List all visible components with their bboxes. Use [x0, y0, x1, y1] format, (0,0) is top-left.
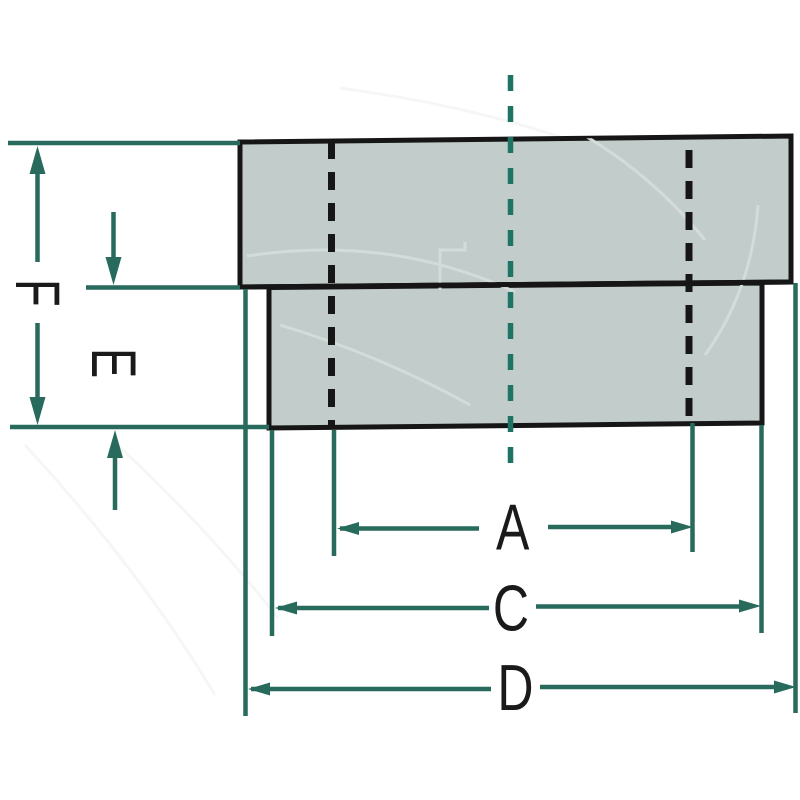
- svg-text:F: F: [2, 279, 73, 307]
- svg-text:D: D: [497, 652, 533, 725]
- svg-text:A: A: [496, 491, 530, 564]
- svg-text:E: E: [78, 348, 149, 378]
- svg-text:C: C: [493, 572, 529, 645]
